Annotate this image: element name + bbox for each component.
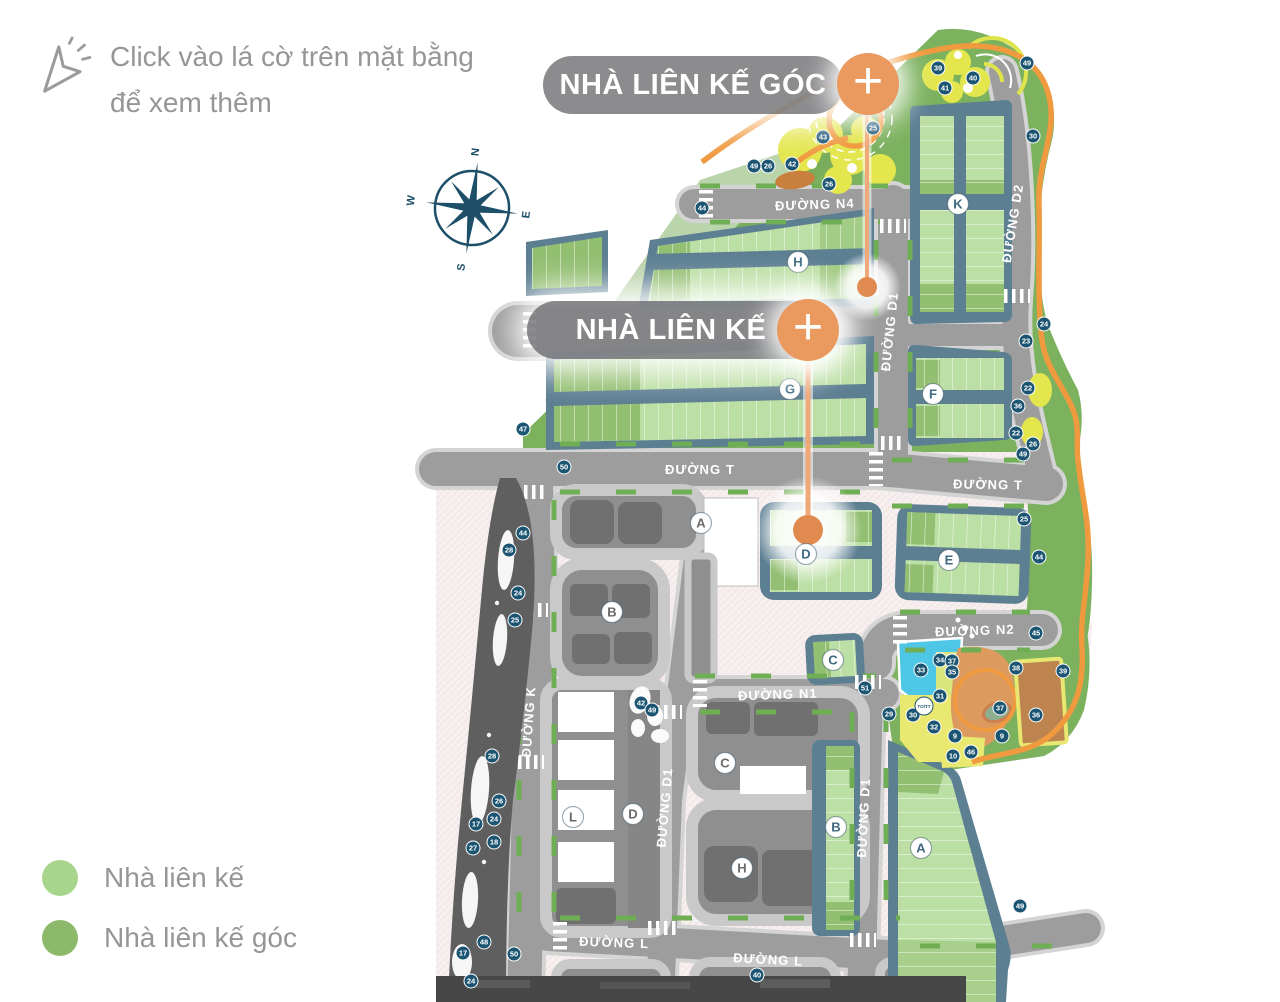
- instruction: Click vào lá cờ trên mặt bằng để xem thê…: [34, 34, 474, 126]
- map-marker-50: 50: [557, 460, 571, 474]
- map-marker-49: 49: [1020, 56, 1034, 70]
- block-label-k: K: [948, 194, 969, 215]
- svg-text:23: 23: [1022, 337, 1030, 346]
- block-label-f: F: [923, 384, 944, 405]
- map-marker-26: 26: [761, 159, 775, 173]
- svg-text:42: 42: [637, 699, 645, 708]
- svg-text:K: K: [953, 197, 963, 212]
- block-label-l: L: [563, 807, 584, 828]
- svg-text:TO/TT: TO/TT: [917, 704, 930, 709]
- map-marker-25: 25: [866, 121, 880, 135]
- svg-text:49: 49: [1019, 450, 1027, 459]
- svg-text:L: L: [569, 810, 577, 825]
- map-marker-17: 17: [469, 817, 483, 831]
- svg-text:44: 44: [519, 529, 528, 538]
- map-marker-26: 26: [822, 177, 836, 191]
- road-label: ĐƯỜNG T: [953, 476, 1023, 492]
- svg-text:27: 27: [469, 844, 477, 853]
- compass-e: E: [520, 210, 533, 219]
- block-label-b: B: [602, 602, 623, 623]
- block-label-d: D: [623, 804, 644, 825]
- bottom-band: [436, 976, 966, 1002]
- svg-text:24: 24: [490, 815, 499, 824]
- legend-label: Nhà liên kế góc: [104, 922, 297, 954]
- instruction-line1: Click vào lá cờ trên mặt bằng: [110, 34, 474, 80]
- map-marker-28: 28: [502, 543, 516, 557]
- svg-text:41: 41: [941, 84, 949, 93]
- svg-text:C: C: [828, 653, 838, 668]
- svg-text:34: 34: [936, 656, 945, 665]
- block-label-b: B: [826, 817, 847, 838]
- cursor-click-icon: [34, 34, 96, 104]
- map-marker-10: 10: [946, 749, 960, 763]
- svg-text:49: 49: [1023, 59, 1031, 68]
- map-marker-49: 49: [645, 703, 659, 717]
- svg-text:46: 46: [967, 748, 975, 757]
- map-marker-26: 26: [492, 794, 506, 808]
- svg-text:28: 28: [488, 752, 496, 761]
- svg-text:42: 42: [788, 160, 796, 169]
- map-marker-49: 49: [1016, 447, 1030, 461]
- legend-swatch-light-green: [42, 860, 78, 896]
- svg-text:39: 39: [1059, 667, 1067, 676]
- map-marker-32: 32: [927, 720, 941, 734]
- map-marker-39: 39: [1056, 664, 1070, 678]
- svg-text:C: C: [720, 756, 730, 771]
- map-marker-49: 49: [1013, 899, 1027, 913]
- block-label-h: H: [788, 252, 809, 273]
- legend-row-nha-lien-ke-goc: Nhà liên kế góc: [42, 920, 297, 956]
- svg-text:44: 44: [698, 204, 707, 213]
- svg-text:9: 9: [953, 732, 957, 741]
- svg-text:43: 43: [819, 133, 827, 142]
- svg-text:18: 18: [490, 838, 498, 847]
- map-marker-25: 25: [508, 613, 522, 627]
- legend-row-nha-lien-ke: Nhà liên kế: [42, 860, 297, 896]
- map-marker-37: 37: [993, 701, 1007, 715]
- svg-text:26: 26: [764, 162, 772, 171]
- flag-dot-nha-lien-ke-goc[interactable]: [857, 277, 877, 297]
- map-marker-29: 29: [882, 707, 896, 721]
- block-label-c: C: [715, 753, 736, 774]
- block-label-h: H: [732, 858, 753, 879]
- map-marker-31: 31: [933, 689, 947, 703]
- masterplan-map: N E S W ĐƯỜNG N4ĐƯỜNG D1ĐƯỜNG D2ĐƯỜNG TĐ…: [0, 0, 1280, 1002]
- map-marker-23: 23: [1019, 334, 1033, 348]
- svg-text:50: 50: [560, 463, 568, 472]
- svg-text:25: 25: [511, 616, 519, 625]
- svg-text:50: 50: [510, 950, 518, 959]
- map-marker-24: 24: [1037, 317, 1051, 331]
- svg-text:44: 44: [1035, 553, 1044, 562]
- svg-text:17: 17: [472, 820, 480, 829]
- svg-text:25: 25: [869, 124, 877, 133]
- map-marker-40: 40: [750, 968, 764, 982]
- map-marker-36: 36: [1029, 708, 1043, 722]
- road-label: ĐƯỜNG T: [665, 462, 735, 477]
- svg-text:51: 51: [861, 684, 869, 693]
- svg-text:H: H: [737, 861, 746, 876]
- map-marker-24: 24: [487, 812, 501, 826]
- map-marker-24: 24: [511, 586, 525, 600]
- map-marker-39: 39: [931, 61, 945, 75]
- svg-text:32: 32: [930, 723, 938, 732]
- map-marker-33: 33: [914, 663, 928, 677]
- svg-text:49: 49: [648, 706, 656, 715]
- svg-text:D: D: [801, 547, 810, 562]
- svg-text:35: 35: [948, 668, 956, 677]
- map-marker-51: 51: [858, 681, 872, 695]
- svg-text:B: B: [607, 605, 616, 620]
- map-marker-50: 50: [507, 947, 521, 961]
- svg-text:48: 48: [480, 938, 488, 947]
- map-marker-47: 47: [516, 422, 530, 436]
- svg-text:9: 9: [1000, 732, 1004, 741]
- map-marker-41: 41: [938, 81, 952, 95]
- map-marker-22: 22: [1021, 381, 1035, 395]
- svg-text:36: 36: [1032, 711, 1040, 720]
- map-marker-9: 9: [995, 729, 1009, 743]
- callout-label: NHÀ LIÊN KẾ: [576, 314, 767, 347]
- map-marker-38: 38: [1009, 661, 1023, 675]
- map-marker-to-tt: TO/TT: [915, 697, 933, 715]
- svg-text:17: 17: [459, 949, 467, 958]
- svg-text:E: E: [945, 553, 954, 568]
- masterplan-page: N E S W ĐƯỜNG N4ĐƯỜNG D1ĐƯỜNG D2ĐƯỜNG TĐ…: [0, 0, 1280, 1002]
- svg-text:24: 24: [514, 589, 523, 598]
- instruction-line2: để xem thêm: [110, 80, 474, 126]
- svg-text:30: 30: [1029, 132, 1037, 141]
- map-marker-35: 35: [945, 665, 959, 679]
- flag-dot-nha-lien-ke[interactable]: [793, 515, 823, 545]
- map-marker-27: 27: [466, 841, 480, 855]
- map-marker-44: 44: [516, 526, 530, 540]
- road-label: ĐƯỜNG L: [579, 934, 649, 951]
- map-marker-40: 40: [966, 71, 980, 85]
- svg-text:37: 37: [948, 657, 956, 666]
- svg-text:25: 25: [1020, 515, 1028, 524]
- map-marker-22: 22: [1009, 426, 1023, 440]
- svg-text:49: 49: [750, 162, 758, 171]
- map-marker-24: 24: [464, 974, 478, 988]
- map-marker-45: 45: [1029, 626, 1043, 640]
- callout-nha-lien-ke-goc[interactable]: NHÀ LIÊN KẾ GÓC: [543, 56, 843, 114]
- svg-text:G: G: [785, 382, 795, 397]
- svg-text:A: A: [916, 841, 926, 856]
- svg-text:28: 28: [505, 546, 513, 555]
- svg-text:29: 29: [885, 710, 893, 719]
- map-marker-17: 17: [456, 946, 470, 960]
- svg-text:47: 47: [519, 425, 527, 434]
- compass: N E S W: [398, 140, 540, 278]
- svg-text:D: D: [628, 807, 637, 822]
- svg-text:22: 22: [1012, 429, 1020, 438]
- svg-text:24: 24: [1040, 320, 1049, 329]
- map-marker-46: 46: [964, 745, 978, 759]
- svg-text:26: 26: [495, 797, 503, 806]
- road-label: ĐƯỜNG N2: [935, 622, 1015, 640]
- legend-swatch-dark-green: [42, 920, 78, 956]
- svg-text:F: F: [929, 387, 937, 402]
- svg-text:30: 30: [909, 711, 917, 720]
- svg-text:36: 36: [1014, 402, 1022, 411]
- road-label: ĐƯỜNG N1: [738, 686, 818, 704]
- map-marker-9: 9: [948, 729, 962, 743]
- svg-text:26: 26: [825, 180, 833, 189]
- svg-text:10: 10: [949, 752, 957, 761]
- block-label-c: C: [823, 650, 844, 671]
- compass-s: S: [455, 263, 468, 272]
- svg-text:39: 39: [934, 64, 942, 73]
- map-marker-49: 49: [747, 159, 761, 173]
- compass-w: W: [405, 194, 418, 206]
- svg-text:49: 49: [1016, 902, 1024, 911]
- map-marker-28: 28: [485, 749, 499, 763]
- map-marker-43: 43: [816, 130, 830, 144]
- svg-text:40: 40: [753, 971, 761, 980]
- block-label-a: A: [691, 513, 712, 534]
- block-label-e: E: [939, 550, 960, 571]
- compass-n: N: [469, 147, 482, 156]
- legend-label: Nhà liên kế: [104, 862, 244, 894]
- svg-text:33: 33: [917, 666, 925, 675]
- map-marker-36: 36: [1011, 399, 1025, 413]
- block-label-d: D: [796, 544, 817, 565]
- map-marker-18: 18: [487, 835, 501, 849]
- map-marker-44: 44: [695, 201, 709, 215]
- svg-text:38: 38: [1012, 664, 1020, 673]
- svg-text:H: H: [793, 255, 802, 270]
- svg-text:26: 26: [1029, 440, 1037, 449]
- legend: Nhà liên kế Nhà liên kế góc: [42, 860, 297, 980]
- svg-text:45: 45: [1032, 629, 1040, 638]
- road-label: ĐƯỜNG N4: [775, 196, 855, 214]
- svg-text:B: B: [831, 820, 840, 835]
- map-marker-48: 48: [477, 935, 491, 949]
- map-marker-44: 44: [1032, 550, 1046, 564]
- block-label-a: A: [911, 838, 932, 859]
- plus-button-nha-lien-ke-goc[interactable]: +: [837, 53, 899, 115]
- plus-button-nha-lien-ke[interactable]: +: [777, 299, 839, 361]
- svg-text:24: 24: [467, 977, 476, 986]
- callout-label-goc: NHÀ LIÊN KẾ GÓC: [560, 69, 827, 102]
- instruction-text: Click vào lá cờ trên mặt bằng để xem thê…: [110, 34, 474, 126]
- map-marker-42: 42: [785, 157, 799, 171]
- block-label-g: G: [780, 379, 801, 400]
- svg-text:40: 40: [969, 74, 977, 83]
- svg-text:A: A: [696, 516, 706, 531]
- svg-text:31: 31: [936, 692, 944, 701]
- svg-text:37: 37: [996, 704, 1004, 713]
- svg-text:22: 22: [1024, 384, 1032, 393]
- map-marker-30: 30: [1026, 129, 1040, 143]
- map-marker-25: 25: [1017, 512, 1031, 526]
